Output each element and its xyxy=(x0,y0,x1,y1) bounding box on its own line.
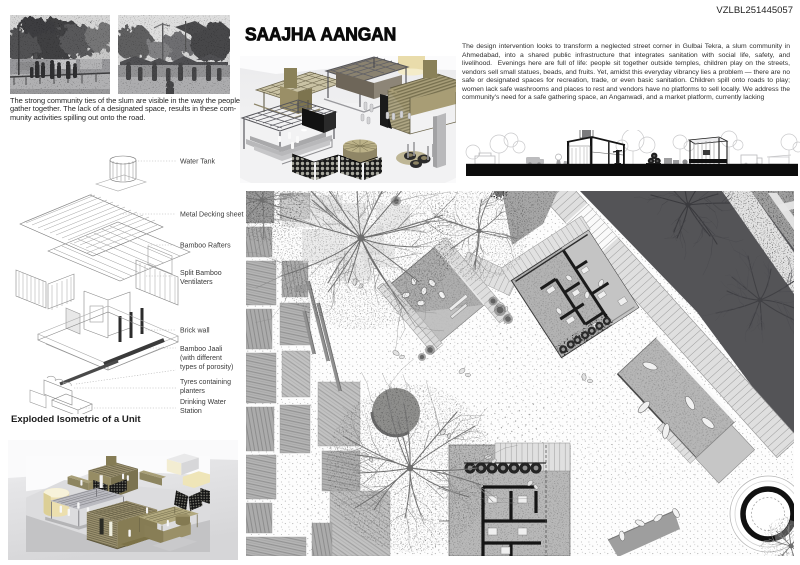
svg-text:types of porosity): types of porosity) xyxy=(180,364,233,371)
svg-text:Metal Decking sheet: Metal Decking sheet xyxy=(180,212,243,219)
svg-text:Water Tank: Water Tank xyxy=(180,159,216,166)
svg-text:Tyres containing: Tyres containing xyxy=(180,379,231,386)
svg-text:Split Bamboo: Split Bamboo xyxy=(180,270,222,277)
svg-text:Ventilaters: Ventilaters xyxy=(180,279,213,286)
svg-text:Drinking Water: Drinking Water xyxy=(180,399,227,406)
svg-text:Station: Station xyxy=(180,408,202,414)
svg-text:Bamboo Rafters: Bamboo Rafters xyxy=(180,243,231,250)
svg-text:Brick wall: Brick wall xyxy=(180,328,210,335)
svg-text:planters: planters xyxy=(180,388,205,395)
svg-text:(with different: (with different xyxy=(180,355,222,362)
svg-text:Bamboo Jaali: Bamboo Jaali xyxy=(180,346,223,353)
